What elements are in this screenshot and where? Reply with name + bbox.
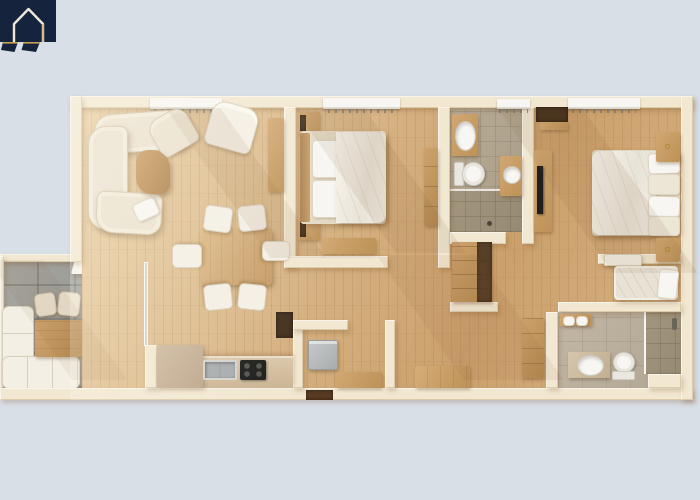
wall-segment: [450, 302, 498, 312]
toilet-tank: [612, 371, 635, 380]
shower-head-icon: [487, 221, 492, 226]
wall-segment: [284, 256, 388, 268]
ensuite-shower-glass: [644, 312, 646, 374]
toilet: [462, 162, 485, 186]
wall-segment: [648, 374, 681, 388]
towel-roll: [576, 316, 588, 326]
window: [323, 98, 400, 109]
wall-outer-left: [70, 96, 82, 262]
bed-pillow: [648, 174, 680, 195]
wall-segment: [558, 302, 681, 312]
wall-segment: [0, 254, 78, 262]
window: [568, 98, 640, 109]
wall-segment: [546, 312, 558, 388]
bed-pillow: [648, 195, 681, 217]
wall-shelf: [604, 254, 642, 266]
foot-bench: [322, 238, 376, 254]
tv: [537, 166, 543, 214]
dining-chair: [202, 204, 233, 234]
dining-chair: [262, 241, 290, 261]
wall-segment: [293, 320, 348, 330]
kitchen-sink: [203, 360, 237, 380]
wall-segment: [385, 320, 395, 388]
outdoor-sofa-seat: [2, 356, 80, 389]
floor-plan-image: [0, 0, 700, 500]
shower-head-icon: [672, 318, 677, 330]
nightstand: [656, 238, 680, 262]
bed-duvet: [592, 151, 656, 235]
pantry-cabinet: [276, 312, 293, 338]
window: [150, 98, 222, 109]
closet-shelf: [540, 122, 568, 130]
dining-chair: [172, 244, 202, 268]
vanity-sink: [577, 355, 604, 376]
open-closet: [536, 107, 568, 122]
kitchen-worktop-marble: [157, 345, 203, 388]
wall-outer-right: [681, 96, 693, 400]
vanity-sink: [455, 121, 476, 151]
logo-background: [0, 0, 56, 42]
dining-chair: [203, 283, 234, 312]
single-bed-blanket: [616, 268, 658, 298]
outdoor-stool: [57, 291, 81, 317]
washing-machine: [308, 340, 338, 370]
brand-logo: [0, 0, 57, 53]
shower-floor: [450, 190, 522, 232]
cooktop: [240, 360, 266, 380]
sideboard: [268, 118, 284, 192]
hall-bench: [415, 366, 470, 388]
wall-segment: [438, 107, 450, 268]
bed-pillow: [656, 268, 679, 300]
bed-headboard: [300, 133, 310, 222]
nightstand: [656, 132, 680, 162]
laundry-cabinet: [336, 372, 382, 388]
dining-chair: [237, 204, 268, 233]
wardrobe: [522, 318, 544, 378]
window: [497, 99, 530, 109]
hall-closet: [452, 242, 492, 302]
wardrobe: [424, 148, 438, 226]
outdoor-stool: [34, 292, 58, 318]
bed-pillow: [648, 216, 680, 236]
entry-door: [306, 390, 333, 400]
bed-duvet: [336, 132, 386, 223]
terrace-glass-door: [144, 262, 148, 346]
closet-shadow: [477, 242, 492, 302]
outdoor-table: [35, 320, 82, 357]
toilet: [613, 352, 635, 373]
towel-roll: [563, 316, 575, 326]
vanity-sink: [503, 166, 521, 184]
wall-segment: [145, 345, 157, 388]
dining-chair: [237, 283, 268, 312]
coffee-table: [136, 150, 170, 194]
wall-segment: [293, 320, 303, 388]
wall-outer-bottom: [0, 388, 693, 400]
wall-segment: [522, 107, 534, 244]
